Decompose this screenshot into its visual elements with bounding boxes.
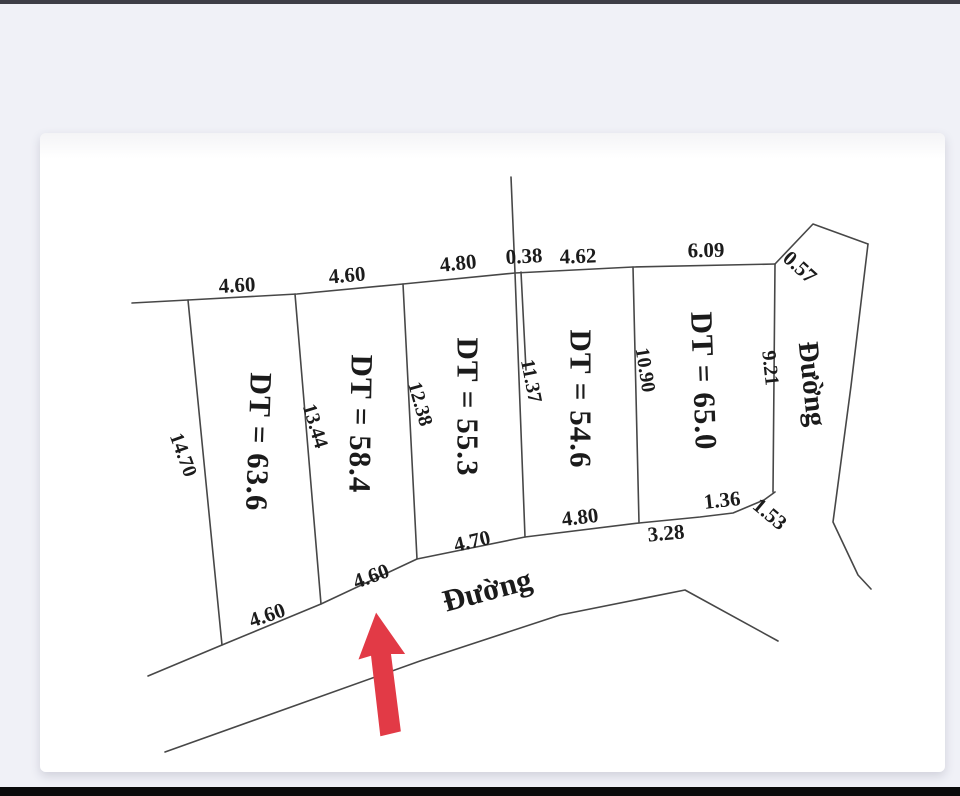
- dim-top-4: 0.38: [505, 243, 543, 269]
- road-label-bottom: Đường: [439, 561, 536, 618]
- dim-bottom-3: 4.70: [451, 525, 492, 557]
- dim-bottom-2: 4.60: [350, 558, 393, 593]
- dim-top-5: 4.62: [559, 243, 597, 268]
- road-right-right-edge: [833, 244, 871, 589]
- dim-bottom-7: 1.53: [748, 493, 792, 535]
- dim-side-5: 10.90: [631, 346, 660, 394]
- area-label-plot-1: DT = 63.6: [239, 372, 279, 512]
- highlight-arrow-icon: [352, 609, 416, 737]
- dim-bottom-5: 3.28: [647, 519, 686, 546]
- dim-bottom-1: 4.60: [246, 598, 289, 633]
- dim-top-2: 4.60: [328, 261, 367, 288]
- dim-bottom-4: 4.80: [560, 503, 599, 531]
- area-label-plot-4: DT = 54.6: [564, 330, 599, 469]
- dim-top-7: 0.57: [778, 246, 821, 288]
- dim-side-3: 12.38: [403, 379, 437, 428]
- plot-divider-5: [633, 267, 639, 523]
- plot-divider-4b: [521, 272, 526, 370]
- dim-side-1: 14.70: [165, 430, 201, 480]
- cadastral-sketch: 4.60 4.60 4.80 0.38 4.62 6.09 0.57 14.70…: [0, 0, 960, 796]
- dim-side-6: 9.21: [757, 349, 783, 386]
- dim-bottom-6: 1.36: [702, 486, 741, 514]
- plot-divider-2: [295, 294, 321, 604]
- dim-top-1: 4.60: [218, 272, 256, 298]
- area-label-plot-5: DT = 65.0: [684, 311, 724, 451]
- page-background: 4.60 4.60 4.80 0.38 4.62 6.09 0.57 14.70…: [0, 0, 960, 796]
- area-label-plot-2: DT = 58.4: [342, 354, 379, 494]
- dim-top-3: 4.80: [438, 249, 477, 277]
- dim-top-6: 6.09: [687, 238, 724, 263]
- road-label-right: Đường: [792, 340, 833, 428]
- bottom-window-edge: [0, 787, 960, 796]
- dim-side-2: 13.44: [298, 401, 332, 450]
- area-label-plot-3: DT = 55.3: [451, 338, 486, 477]
